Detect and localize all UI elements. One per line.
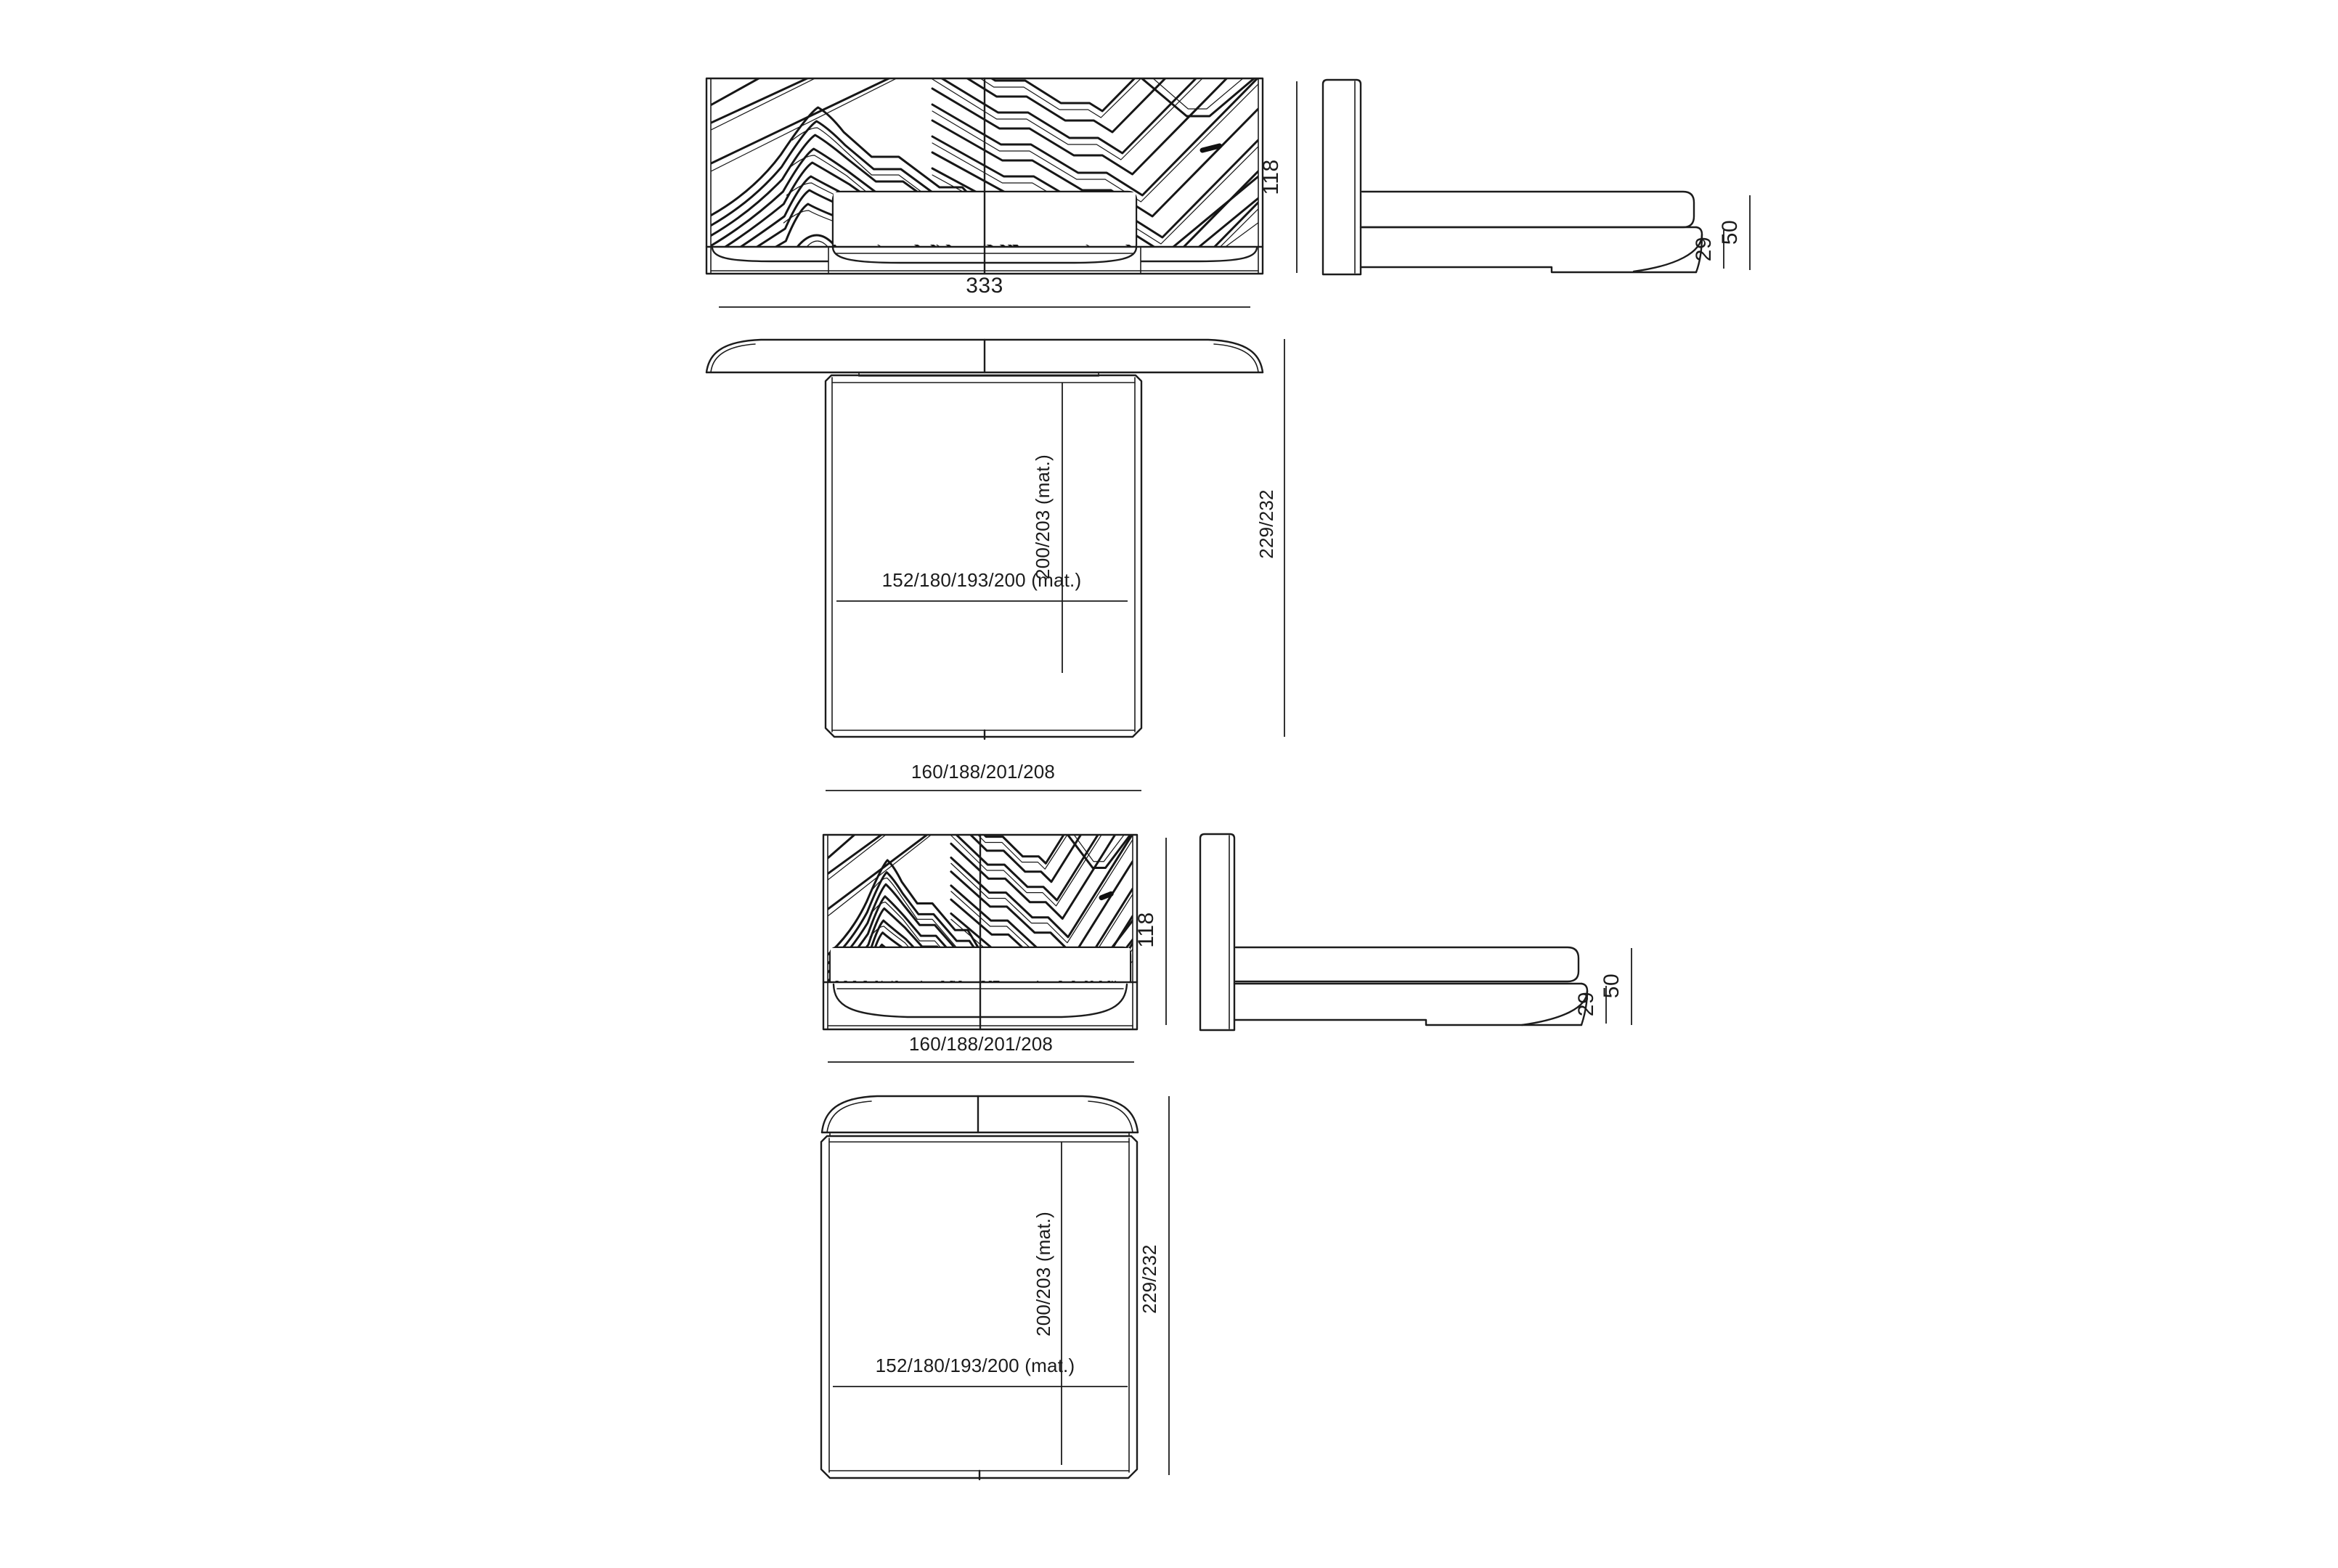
pattern-contour-line xyxy=(706,74,898,166)
pattern-contour-line xyxy=(805,241,830,250)
plan-view-wide: 200/203 (mat.) 152/180/193/200 (mat.) 22… xyxy=(706,339,1284,791)
mattress-length-label: 200/203 (mat.) xyxy=(1032,454,1054,579)
width-dim-label: 333 xyxy=(966,274,1003,298)
left-skirt-curve xyxy=(712,248,828,261)
bed-frame-outline xyxy=(826,375,1141,737)
mattress-width-label: 152/180/193/200 (mat.) xyxy=(882,569,1082,591)
right-skirt-curve xyxy=(1141,248,1257,261)
base-height-label: 50 xyxy=(1718,220,1742,245)
platform-height-label: 29 xyxy=(1574,992,1598,1016)
pattern-contour-line xyxy=(932,78,1202,160)
front-view-compact: 160/188/201/208 118 xyxy=(823,802,1166,1063)
mattress-side xyxy=(1362,192,1694,227)
plan-view-compact: 200/203 (mat.) 152/180/193/200 (mat.) 22… xyxy=(821,1096,1169,1479)
frame-width-label: 160/188/201/208 xyxy=(911,761,1055,783)
height-dim-label: 118 xyxy=(1259,159,1283,195)
height-dim-label: 118 xyxy=(1134,912,1158,947)
overall-depth-label: 229/232 xyxy=(1139,1244,1160,1313)
base-height-label: 50 xyxy=(1600,973,1624,998)
mattress-length-label: 200/203 (mat.) xyxy=(1032,1212,1054,1336)
side-view-wide: 29 50 xyxy=(1323,80,1750,274)
front-view-wide: 333 118 xyxy=(706,41,1297,307)
technical-drawing-page: 333 118 29 50 200/203 (mat.) 1 xyxy=(0,0,2338,1568)
platform-height-label: 29 xyxy=(1692,237,1716,261)
overall-depth-label: 229/232 xyxy=(1255,489,1277,558)
side-view-compact: 29 50 xyxy=(1200,834,1632,1030)
pattern-contour-line xyxy=(951,835,1101,906)
pattern-contour-line xyxy=(706,74,905,173)
bed-frame-outline xyxy=(821,1136,1137,1478)
base-bottom-line xyxy=(1234,1020,1581,1025)
mattress-width-label: 152/180/193/200 (mat.) xyxy=(876,1355,1075,1376)
mattress-side xyxy=(1236,947,1579,981)
bed-dimension-drawing: 333 118 29 50 200/203 (mat.) 1 xyxy=(0,0,2338,1568)
pattern-knot-dash xyxy=(1101,894,1111,897)
width-dim-label: 160/188/201/208 xyxy=(909,1033,1053,1055)
pattern-contour-line xyxy=(1194,196,1260,251)
